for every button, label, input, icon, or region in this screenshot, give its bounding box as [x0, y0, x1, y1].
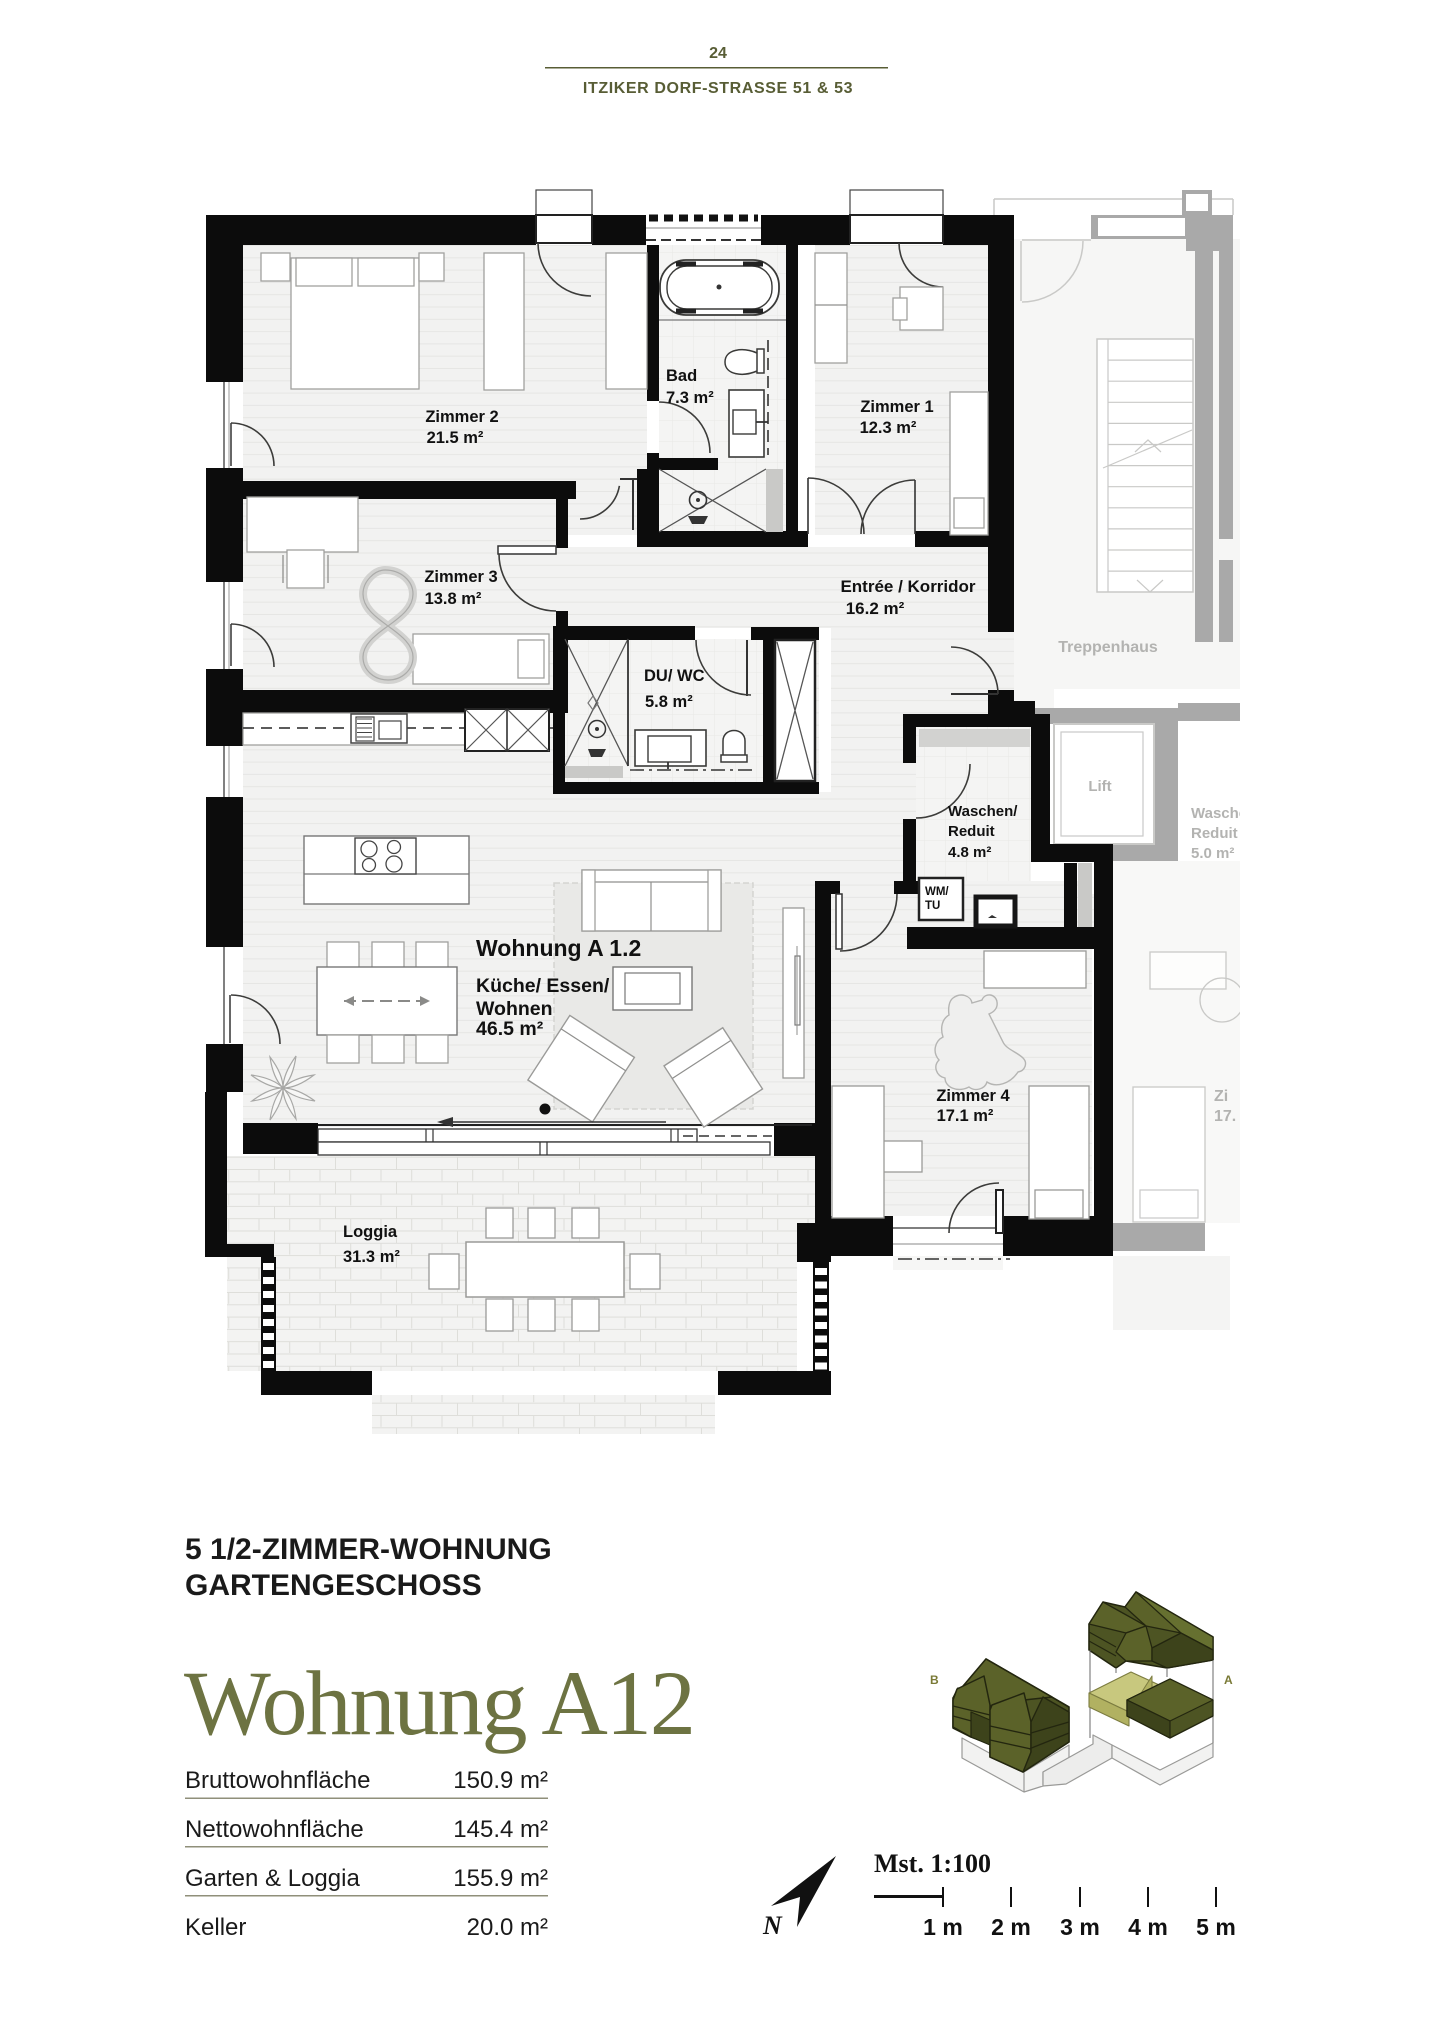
- svg-text:21.5 m²: 21.5 m²: [427, 429, 484, 447]
- svg-text:ITZIKER DORF-STRASSE 51 & 53: ITZIKER DORF-STRASSE 51 & 53: [583, 80, 853, 97]
- svg-text:Keller: Keller: [185, 1914, 246, 1941]
- svg-text:Bad: Bad: [666, 367, 697, 385]
- svg-text:GARTENGESCHOSS: GARTENGESCHOSS: [185, 1569, 482, 1602]
- svg-text:12.3 m²: 12.3 m²: [860, 419, 917, 437]
- svg-text:150.9 m²: 150.9 m²: [453, 1767, 548, 1794]
- svg-text:Treppenhaus: Treppenhaus: [1058, 639, 1158, 656]
- svg-text:5 1/2-ZIMMER-WOHNUNG: 5 1/2-ZIMMER-WOHNUNG: [185, 1533, 552, 1566]
- svg-text:155.9 m²: 155.9 m²: [453, 1865, 548, 1892]
- svg-text:A: A: [1224, 1673, 1233, 1687]
- svg-text:4.8 m²: 4.8 m²: [948, 844, 991, 861]
- svg-text:Zimmer 4: Zimmer 4: [936, 1087, 1010, 1105]
- svg-text:20.0 m²: 20.0 m²: [467, 1914, 548, 1941]
- svg-text:5.8 m²: 5.8 m²: [645, 693, 693, 711]
- svg-text:46.5 m²: 46.5 m²: [476, 1018, 544, 1040]
- svg-text:Küche/ Essen/: Küche/ Essen/: [476, 975, 610, 997]
- svg-text:Wohnung A12: Wohnung A12: [184, 1652, 694, 1754]
- svg-text:13.8 m²: 13.8 m²: [425, 590, 482, 608]
- svg-text:4 m: 4 m: [1128, 1914, 1168, 1940]
- svg-text:Reduit: Reduit: [948, 823, 995, 840]
- svg-text:5.0 m²: 5.0 m²: [1191, 845, 1234, 862]
- svg-text:Zimmer 2: Zimmer 2: [425, 408, 498, 426]
- svg-text:B: B: [930, 1673, 939, 1687]
- svg-text:2 m: 2 m: [991, 1914, 1031, 1940]
- svg-text:24: 24: [709, 45, 727, 62]
- svg-text:Mst. 1:100: Mst. 1:100: [874, 1849, 991, 1878]
- svg-text:Reduit: Reduit: [1191, 825, 1238, 842]
- svg-text:DU/ WC: DU/ WC: [644, 667, 705, 685]
- svg-text:TU: TU: [925, 900, 940, 912]
- svg-text:17.: 17.: [1214, 1108, 1236, 1125]
- svg-text:Zimmer 1: Zimmer 1: [860, 398, 933, 416]
- svg-text:7.3 m²: 7.3 m²: [666, 389, 714, 407]
- svg-text:Garten & Loggia: Garten & Loggia: [185, 1865, 360, 1892]
- svg-text:1 m: 1 m: [923, 1914, 963, 1940]
- svg-text:Wohnung A 1.2: Wohnung A 1.2: [476, 935, 641, 961]
- svg-text:Loggia: Loggia: [343, 1223, 398, 1241]
- svg-text:Zimmer 3: Zimmer 3: [424, 568, 497, 586]
- svg-text:3 m: 3 m: [1060, 1914, 1100, 1940]
- svg-text:17.1 m²: 17.1 m²: [937, 1107, 994, 1125]
- svg-text:Bruttowohnfläche: Bruttowohnfläche: [185, 1767, 370, 1794]
- svg-text:16.2 m²: 16.2 m²: [846, 599, 905, 618]
- svg-text:Entrée / Korridor: Entrée / Korridor: [840, 577, 975, 596]
- svg-text:Wohnen: Wohnen: [476, 998, 553, 1020]
- svg-text:145.4 m²: 145.4 m²: [453, 1816, 548, 1843]
- svg-text:Waschen/: Waschen/: [948, 803, 1018, 820]
- svg-text:WM/: WM/: [925, 886, 949, 898]
- svg-text:Zi: Zi: [1214, 1088, 1228, 1105]
- svg-text:31.3 m²: 31.3 m²: [343, 1248, 400, 1266]
- svg-text:N: N: [762, 1911, 783, 1940]
- svg-text:Nettowohnfläche: Nettowohnfläche: [185, 1816, 364, 1843]
- svg-text:Lift: Lift: [1088, 778, 1111, 795]
- svg-text:5 m: 5 m: [1196, 1914, 1236, 1940]
